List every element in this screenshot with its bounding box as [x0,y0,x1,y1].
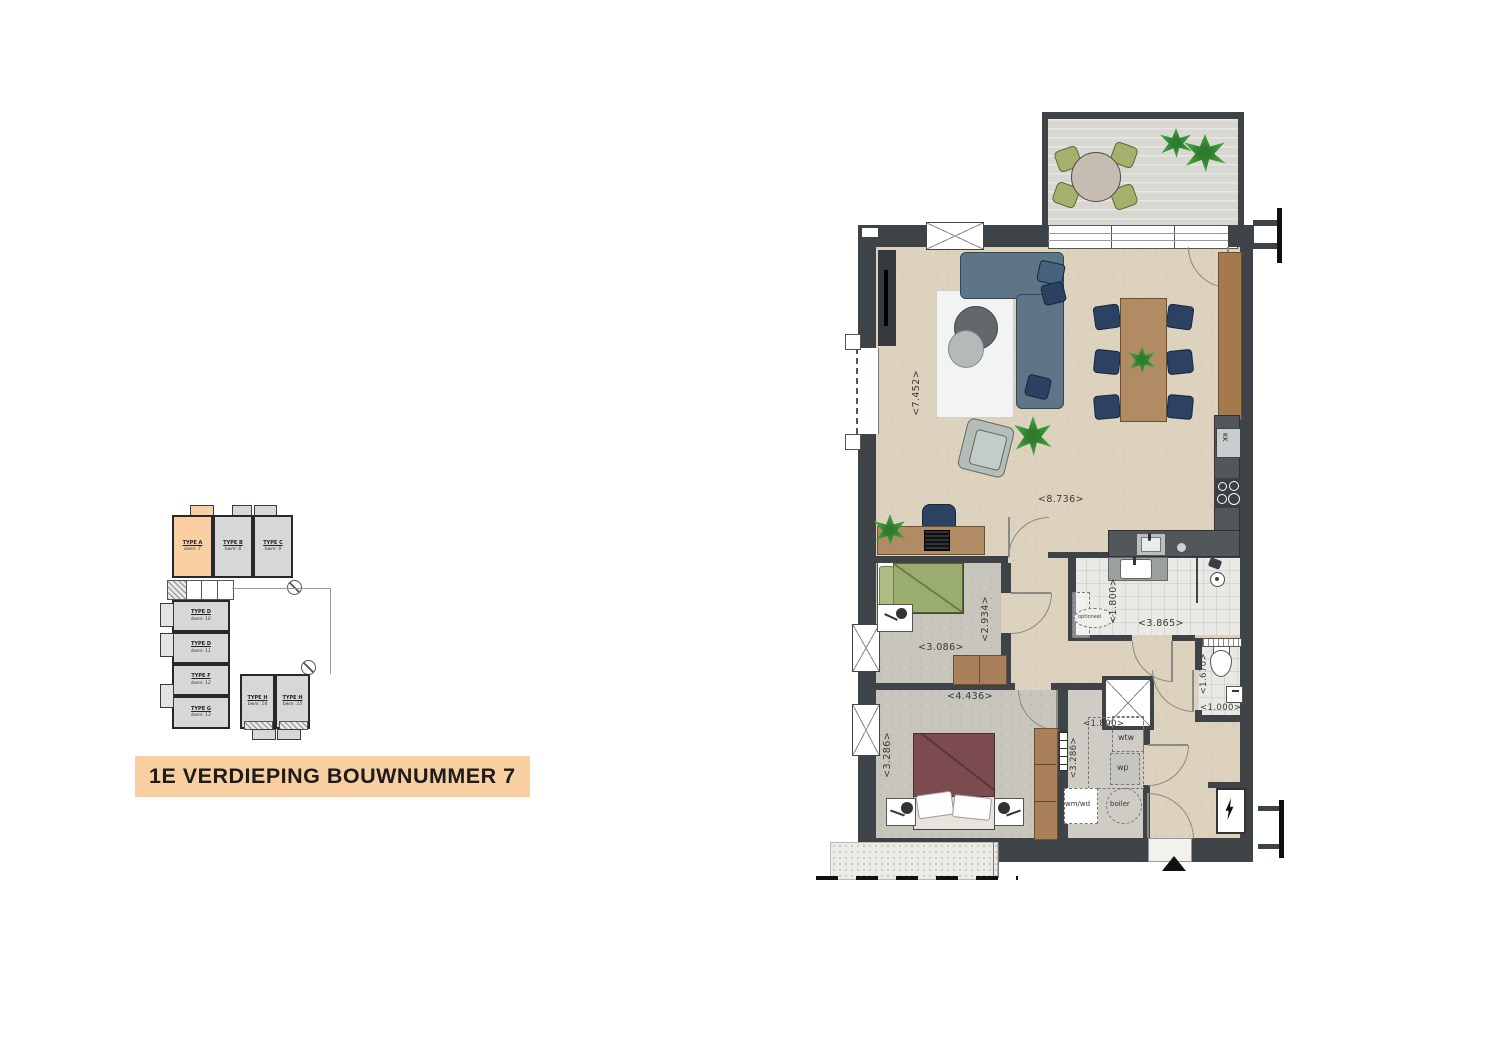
entrance-arrow-icon [1162,856,1186,871]
terrace-wall [1042,112,1244,119]
dim-toilet-depth: <1.670> [1199,653,1209,694]
door-leaf [1192,670,1194,711]
wtw-label: wtw [1118,733,1134,742]
door-leaf [1148,744,1188,746]
overview-balcony [160,603,174,627]
unit-bwnr-label: bwnr. 14 [248,702,267,708]
overview-corridor-line [330,588,331,674]
page-title: 1E VERDIEPING BOUWNUMMER 7 [135,756,530,797]
shower-drain-dot [1215,577,1219,581]
interior-wall [1001,563,1011,593]
dining-chair [1093,349,1121,376]
unit-bwnr-label: bwnr. 13 [191,713,210,719]
unit-type-label: TYPE D [191,641,211,649]
dim-bathroom-width: <3.865> [1138,618,1184,629]
terrace-table [1071,152,1121,202]
bedroom1-wardrobe [1034,728,1058,840]
unit-type-label: TYPE F [191,673,210,681]
overview-unit-d10: TYPE D bwnr. 10 [172,600,230,632]
dining-chair [1166,394,1194,420]
counter-outlet [1176,542,1187,553]
wardrobe-divider [1034,801,1056,802]
terrace-wall [1238,112,1244,225]
cooktop-burner [1228,493,1240,505]
overview-balcony [160,633,174,657]
overview-balcony [160,684,174,708]
dim-tech-depth: <3.286> [1069,737,1079,778]
bedroom2-window [852,624,880,672]
window-sill [845,434,861,450]
dim-bedroom2-width: <3.086> [918,642,964,653]
wardrobe-divider [1034,764,1056,765]
tv-icon [884,270,888,326]
gallery-edge [993,842,994,878]
overview-unit-c: TYPE C bwnr. 9 [253,515,293,578]
overview-map: TYPE A bwnr. 7 TYPE B bwnr. 8 TYPE C bwn… [158,500,343,745]
dining-chair [1093,394,1121,420]
dining-chair [1092,303,1121,330]
unit-bwnr-label: bwnr. 10 [191,617,210,623]
bed-pillow [952,794,992,821]
unit-bwnr-label: bwnr. 9 [265,547,282,553]
kitchen-counter [1108,530,1240,557]
washbasin [1120,559,1152,579]
kitchen-tall-cabinet [1218,252,1242,420]
interior-wall [1068,683,1105,690]
faucet-icon [1148,533,1151,541]
double-bed-duvet [913,733,995,797]
dim-bathroom-depth: <1.800> [1108,578,1119,624]
cooktop-burner [1218,482,1227,491]
unit-bwnr-label: bwnr. 7 [184,547,201,553]
unit-type-label: TYPE D [191,609,211,617]
overview-corridor-line [232,588,331,589]
door-leaf [1056,690,1058,730]
gallery-dashed-line [816,876,1018,880]
terrace-glass-wall [1048,225,1238,249]
shower-partition [1196,557,1198,603]
coffee-table [948,330,984,368]
party-wall-tick [1279,800,1284,858]
gallery-edge [998,842,999,878]
overview-balcony [252,729,276,740]
terrace-wall [1042,112,1048,225]
bed-pillow [916,791,955,820]
wall-notch [862,228,878,237]
overview-unit-d11: TYPE D bwnr. 11 [172,632,230,664]
nightstand [994,798,1024,826]
dining-chair [1165,303,1194,330]
door-leaf [1147,793,1149,838]
dim-bedroom1-depth: <3.286> [882,732,893,778]
unit-bwnr-label: bwnr. 15 [283,702,302,708]
overview-stair-icon [301,660,316,675]
gallery-walkway [830,842,998,880]
dim-toilet-width: <1.000> [1200,703,1241,713]
lamp-icon [901,802,913,814]
boiler-label: boiler [1110,800,1130,808]
overview-shaft [167,580,187,600]
cooktop-burner [1217,494,1227,504]
overview-storage-cells [186,580,234,600]
interior-wall [1195,715,1240,722]
dining-chair [1166,349,1194,376]
door-leaf [1011,592,1051,594]
optional-label: optioneel [1078,614,1101,620]
fridge-label: KK [1221,433,1229,442]
interior-wall [1172,635,1195,641]
cooktop-burner [1229,481,1239,491]
living-window [926,222,984,250]
washer-dryer-label: wm/wd [1065,800,1090,808]
hand-basin [1226,686,1243,703]
interior-wall [1051,683,1068,690]
overview-unit-g13: TYPE G bwnr. 13 [172,696,230,729]
exterior-wall [858,670,876,706]
kitchen-sink-basin [1141,537,1161,552]
unit-bwnr-label: bwnr. 11 [191,649,210,655]
dim-bedroom2-depth: <2.934> [980,596,991,642]
door-leaf [1008,517,1010,557]
overview-unit-f12: TYPE F bwnr. 12 [172,664,230,696]
exterior-wall [858,434,876,626]
overview-unit-a: TYPE A bwnr. 7 [172,515,213,578]
exterior-wall [980,225,1048,247]
overview-balcony [277,729,301,740]
dim-living-width: <7.452> [911,370,922,416]
lamp-icon [998,802,1010,814]
wp-label: wp [1117,763,1129,772]
floorplan-page: TYPE A bwnr. 7 TYPE B bwnr. 8 TYPE C bwn… [0,0,1485,1050]
bedroom2-wardrobe [953,655,1007,685]
faucet-icon [1232,690,1239,692]
dim-bedroom1-width: <4.436> [947,691,993,702]
wardrobe-divider [979,655,980,683]
exterior-wall [1192,838,1253,862]
lamp-icon [896,608,907,619]
radiator [1059,731,1068,771]
dim-tech-width: <1.800> [1083,719,1124,729]
nightstand [886,798,916,826]
exterior-wall [1228,225,1254,247]
window-sill [845,334,861,350]
unit-bwnr-label: bwnr. 8 [225,547,242,553]
unit-bwnr-label: bwnr. 12 [191,681,210,687]
french-balcony-window [856,348,879,434]
bedroom1-window [852,704,880,756]
exterior-wall [858,754,876,838]
faucet-icon [1133,557,1136,565]
laptop [924,530,950,551]
party-wall-tick [1277,208,1282,263]
dim-living-length: <8.736> [1038,494,1084,505]
overview-unit-b: TYPE B bwnr. 8 [213,515,253,578]
